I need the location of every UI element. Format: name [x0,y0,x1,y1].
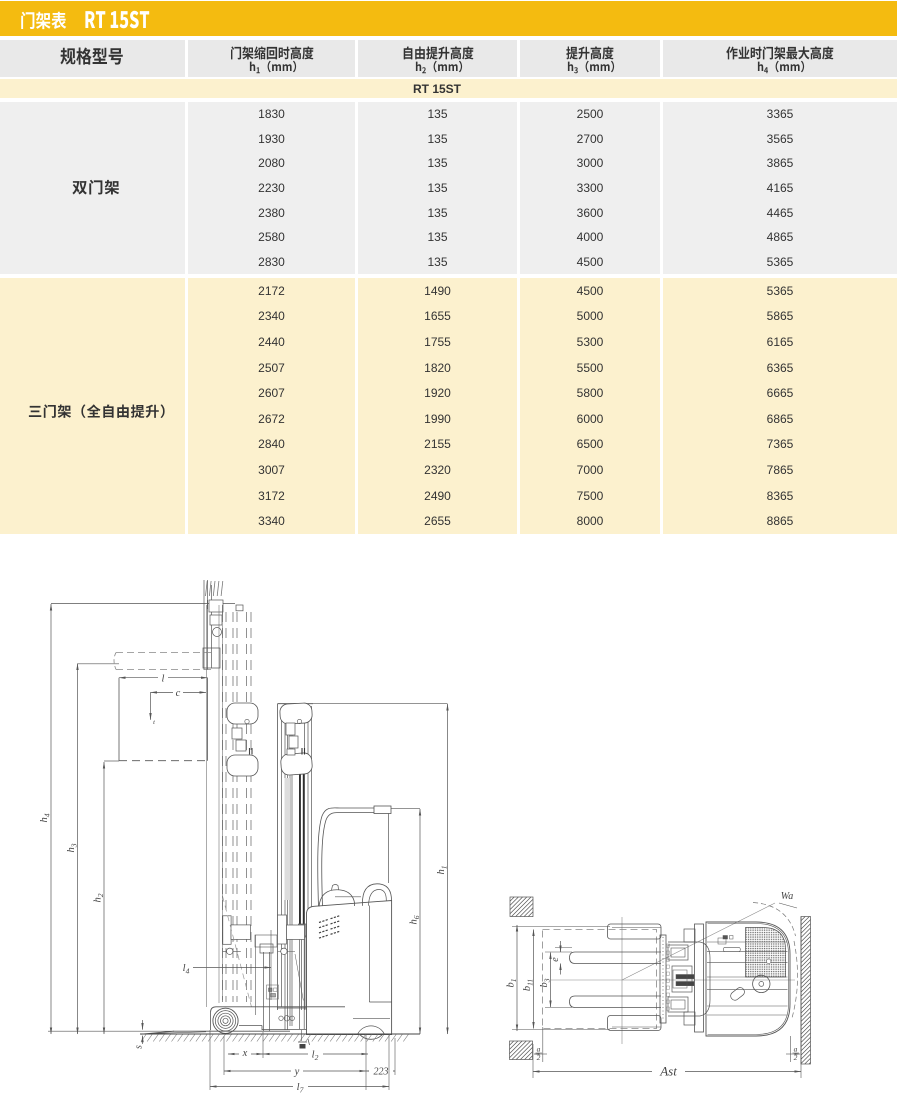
svg-text:2: 2 [537,1053,541,1062]
svg-text:h3: h3 [66,843,79,852]
svg-text:b11: b11 [522,979,535,991]
svg-text:Wa: Wa [781,891,793,902]
svg-text:s: s [134,1045,145,1049]
svg-text:h4: h4 [39,813,52,822]
svg-text:2: 2 [794,1053,798,1062]
svg-text:h1: h1 [436,865,449,874]
svg-text:c: c [176,688,181,699]
svg-text:h2: h2 [93,893,106,902]
svg-text:l: l [162,674,165,685]
svg-text:e: e [550,957,561,962]
svg-text:b1: b1 [506,978,519,987]
svg-text:x: x [242,1048,248,1059]
svg-text:Ast: Ast [659,1064,677,1079]
svg-text:t: t [153,719,155,726]
svg-text:l4: l4 [183,963,190,976]
svg-text:y: y [294,1067,300,1078]
svg-text:223: 223 [374,1067,389,1078]
svg-text:h6: h6 [409,915,422,924]
svg-text:b3: b3 [539,978,552,987]
